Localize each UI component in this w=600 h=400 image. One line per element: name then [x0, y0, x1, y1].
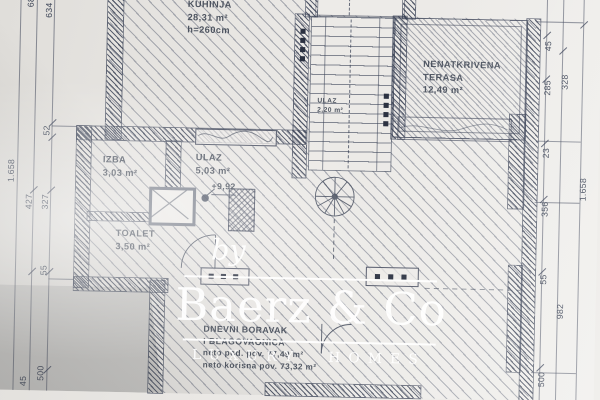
room-area: 28,31 m²	[187, 10, 231, 24]
dim-label: 328	[559, 65, 570, 100]
extension-line	[536, 21, 583, 23]
railing-post	[300, 38, 305, 43]
railing-post	[300, 47, 305, 52]
dim-label: 55	[538, 262, 549, 297]
dim-label: 500	[35, 356, 46, 391]
dim-line	[555, 0, 565, 400]
closet-ulaz	[195, 128, 277, 146]
room-height: h=260cm	[187, 23, 231, 37]
room-area: 3,50 m²	[115, 239, 155, 253]
wall-izba-east	[166, 141, 181, 190]
room-area: 12,49 m²	[423, 83, 501, 97]
stair-stringer-left	[322, 17, 326, 170]
room-label-ulaz-stubiste: ULAZ 2,20 m²	[317, 96, 343, 115]
wall-landing-right	[403, 0, 416, 19]
dim-label: 982	[554, 294, 565, 329]
room-name: ULAZ	[196, 151, 231, 164]
watermark-brand: Baerz & Co	[175, 279, 445, 337]
room-name: KUHINJA	[188, 0, 232, 11]
dim-label: 500	[536, 362, 547, 397]
dim-label: 356	[539, 192, 550, 227]
tilted-drawing: 686 634 52 1.658 427 327 55 45 500 45 28…	[0, 0, 600, 400]
shaft-with-cross	[148, 187, 196, 227]
railing-post	[383, 121, 388, 126]
room-name: ULAZ	[317, 96, 343, 106]
staircase	[309, 17, 394, 172]
room-area: 2,20 m²	[317, 105, 343, 115]
dim-label: 427	[23, 184, 34, 219]
dim-label: 45	[543, 29, 554, 64]
dim-label: 327	[39, 184, 50, 219]
dimension-tick	[28, 268, 36, 276]
room-label-izba: IZBA 3,03 m²	[103, 153, 138, 179]
room-label-terasa: NENATKRIVENA TERASA 12,49 m²	[423, 58, 502, 98]
room-name: NENATKRIVENA	[423, 58, 501, 72]
pilaster-east-lower	[507, 266, 522, 372]
dim-label: 23	[540, 136, 551, 171]
dim-label: 55	[38, 253, 49, 288]
stair-landing	[316, 0, 404, 16]
wall-south-center	[265, 383, 420, 398]
stair-centerline	[348, 19, 352, 168]
dimension-tick	[559, 47, 567, 55]
elevation-label: +9,92	[211, 180, 236, 195]
railing-post	[383, 112, 388, 117]
dim-label: 686	[25, 0, 36, 17]
railing-post	[300, 29, 305, 34]
dim-label: 634	[43, 0, 54, 28]
dim-label: 1.658	[577, 172, 588, 207]
landing-centerline	[349, 0, 351, 15]
railing-post	[384, 103, 389, 108]
stair-stringer-right	[376, 18, 380, 171]
dim-label: 285	[542, 70, 553, 105]
room-label-kuhinja: KUHINJA 28,31 m² h=260cm	[187, 0, 232, 37]
room-name: IZBA	[103, 153, 138, 166]
room-label-ulaz: ULAZ 5,03 m²	[195, 151, 230, 177]
dim-label: 45	[17, 363, 28, 398]
wall-landing-left	[306, 0, 318, 17]
extension-line	[48, 278, 74, 280]
room-area: 5,03 m²	[195, 164, 230, 177]
dim-label: 52	[41, 113, 52, 148]
railing-post	[384, 94, 389, 99]
watermark-by: by	[211, 233, 246, 267]
floorplan-photo: 686 634 52 1.658 427 327 55 45 500 45 28…	[0, 0, 600, 400]
extension-line	[52, 125, 78, 127]
railing-post	[300, 56, 305, 61]
room-area: 3,03 m²	[103, 166, 138, 179]
dim-label: 1.658	[5, 153, 16, 188]
room-label-toalet: TOALET 3,50 m²	[115, 227, 155, 253]
planter-under-terrace	[397, 116, 512, 142]
wall-southwest-vertical	[148, 281, 165, 393]
room-name: TOALET	[116, 227, 156, 241]
